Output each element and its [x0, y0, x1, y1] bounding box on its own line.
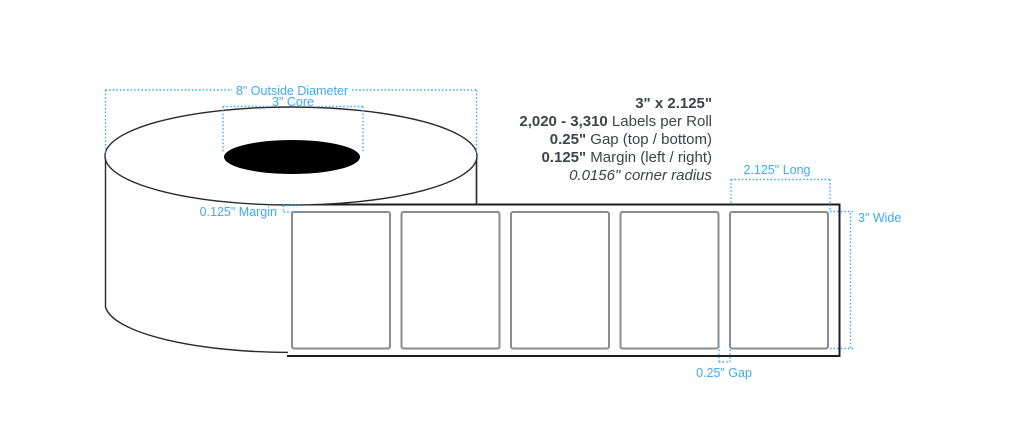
gap-label: 0.25" Gap — [696, 366, 752, 380]
spec-block: 3" x 2.125" 2,020 - 3,310 Labels per Rol… — [519, 95, 712, 185]
spec-gap-value: 0.25" — [550, 131, 586, 148]
length-label: 2.125" Long — [744, 163, 811, 177]
spec-labels-per-roll-text: Labels per Roll — [608, 113, 712, 130]
spec-margin-text: Margin (left / right) — [586, 149, 712, 166]
label-5 — [730, 212, 828, 349]
spec-margin-value: 0.125" — [541, 149, 586, 166]
label-roll-spec-diagram: 8" Outside Diameter 3" Core 0.125" Margi… — [0, 0, 1024, 425]
spec-size: 3" x 2.125" — [519, 95, 712, 113]
spec-corner-radius: 0.0156" corner radius — [519, 167, 712, 185]
label-3 — [511, 212, 609, 349]
spec-gap-text: Gap (top / bottom) — [586, 131, 712, 148]
spec-size-value: 3" x 2.125" — [635, 95, 712, 112]
spec-labels-per-roll: 2,020 - 3,310 Labels per Roll — [519, 113, 712, 131]
spec-gap: 0.25" Gap (top / bottom) — [519, 131, 712, 149]
label-4 — [621, 212, 719, 349]
label-1 — [292, 212, 390, 349]
width-label: 3" Wide — [858, 211, 901, 225]
margin-label: 0.125" Margin — [200, 205, 277, 219]
label-2 — [402, 212, 500, 349]
spec-labels-per-roll-value: 2,020 - 3,310 — [519, 113, 607, 130]
core-label: 3" Core — [272, 95, 314, 109]
spec-margin: 0.125" Margin (left / right) — [519, 149, 712, 167]
roll-core-hole — [224, 140, 360, 174]
labels-row — [292, 212, 828, 349]
